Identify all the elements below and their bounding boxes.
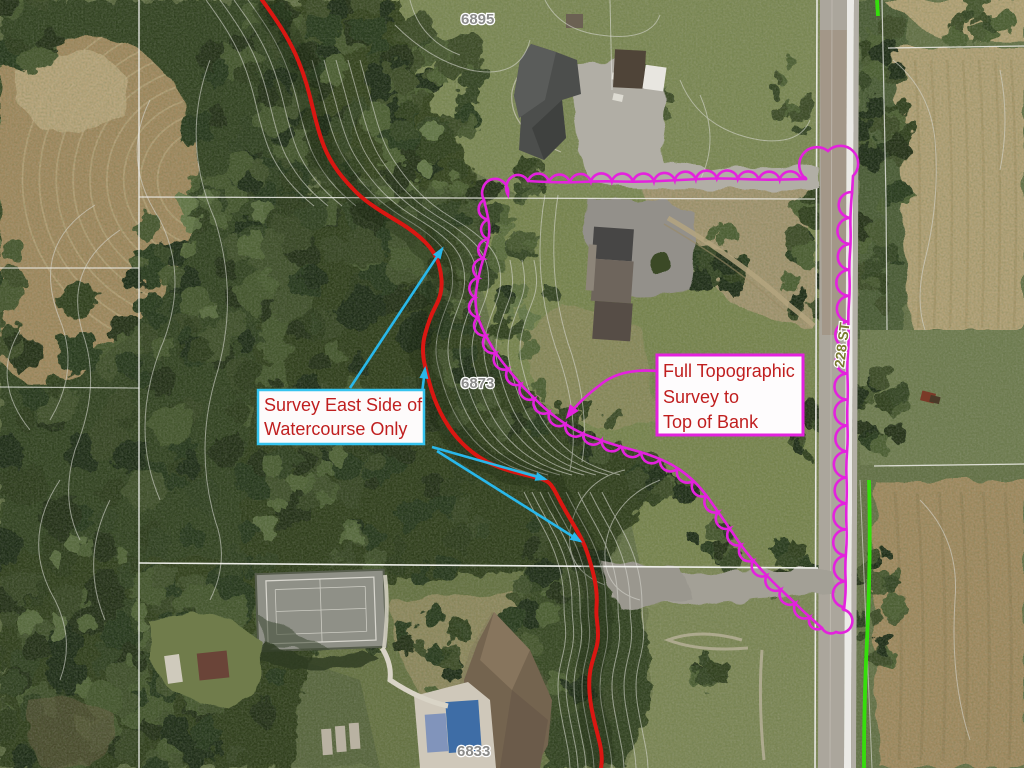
svg-text:Survey to: Survey to [663, 387, 739, 407]
svg-text:Full Topographic: Full Topographic [663, 361, 795, 381]
svg-text:6873: 6873 [461, 375, 494, 392]
svg-text:Top of Bank: Top of Bank [663, 412, 759, 432]
svg-text:6895: 6895 [461, 11, 494, 28]
svg-text:Survey East Side of: Survey East Side of [264, 395, 423, 415]
svg-text:Watercourse Only: Watercourse Only [264, 419, 407, 439]
svg-text:6833: 6833 [457, 743, 490, 760]
